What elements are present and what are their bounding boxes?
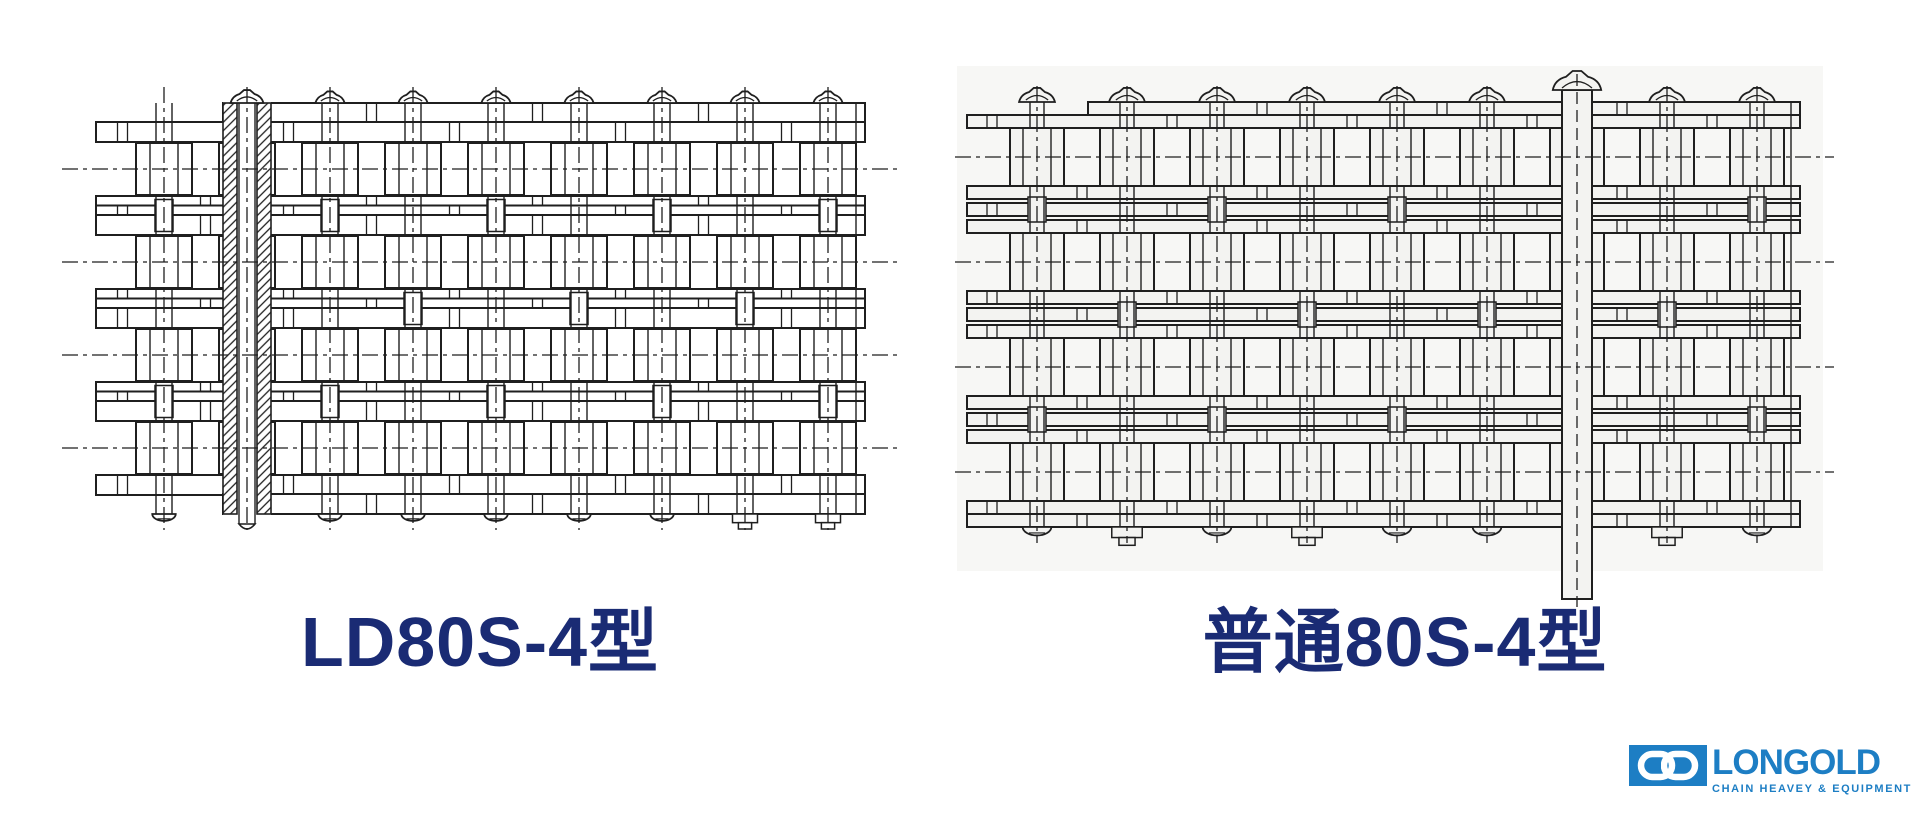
- logo-brand-text: LONGOLD: [1712, 745, 1912, 781]
- gd-chain-link-icon: [1629, 745, 1707, 786]
- page: LD80S-4型 普通80S-4型 LONGOLD CHAIN HEAVEY &…: [0, 0, 1920, 819]
- chain-link-interlock: [1653, 762, 1661, 769]
- standard-chain-technical-drawing: [955, 50, 1835, 610]
- ld-chain-technical-drawing: [60, 55, 900, 555]
- logo-tagline-text: CHAIN HEAVEY & EQUIPMENT: [1712, 783, 1912, 795]
- drawing-ld80s-4-chain: [60, 55, 900, 555]
- drawing-standard-80s-4-chain: [955, 50, 1835, 610]
- longold-logo: LONGOLD CHAIN HEAVEY & EQUIPMENT: [1629, 745, 1912, 795]
- label-ld80s-4: LD80S-4型: [120, 604, 840, 681]
- label-standard-80s-4: 普通80S-4型: [1045, 604, 1765, 681]
- logo-text: LONGOLD CHAIN HEAVEY & EQUIPMENT: [1712, 745, 1912, 795]
